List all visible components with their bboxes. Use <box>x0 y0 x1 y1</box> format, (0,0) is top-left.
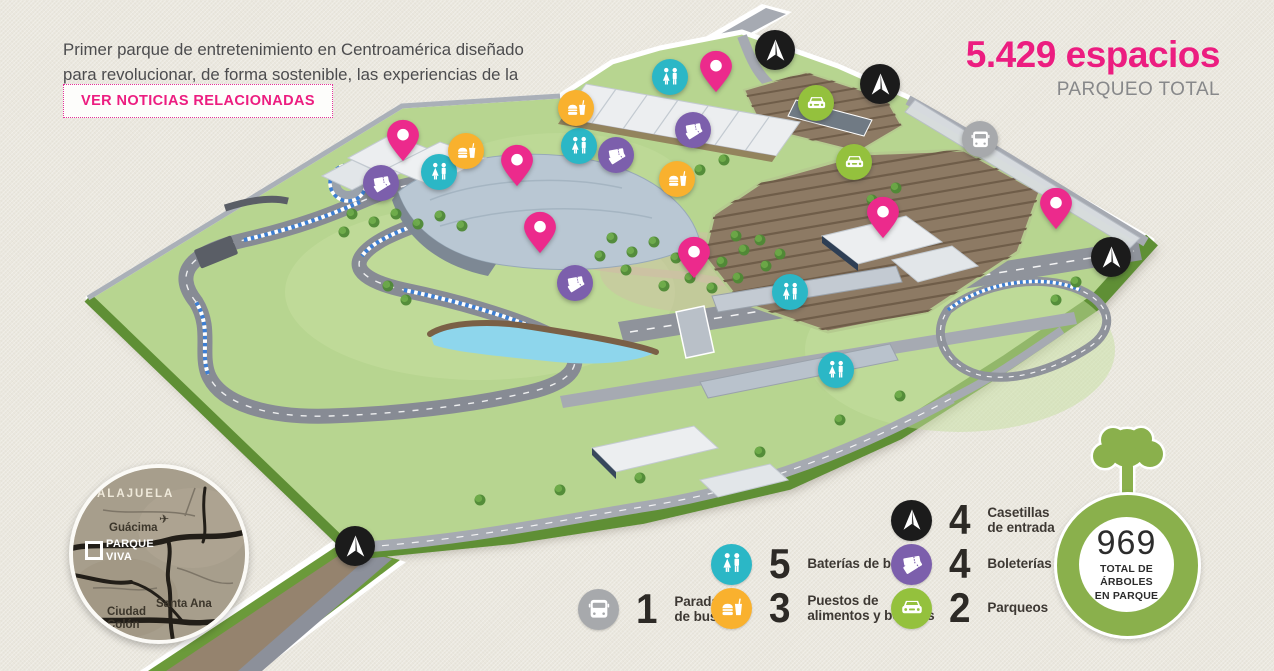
legend-count: 4 <box>949 499 970 541</box>
tree-count: 969 <box>1097 526 1157 560</box>
tree-badge-center: 969 TOTAL DE ÁRBOLES EN PARQUE <box>1079 517 1174 612</box>
map-marker-banos[interactable] <box>561 128 597 164</box>
location-inset-map: ✈ ALAJUELA Guácima PARQUE VIVA Santa Ana… <box>69 464 249 644</box>
legend-label: Boleterías <box>987 556 1051 571</box>
legend-label: Parqueos <box>987 600 1048 615</box>
parking-stat: 5.429 espacios PARQUEO TOTAL <box>966 34 1220 101</box>
map-marker-parqueo[interactable] <box>798 85 834 121</box>
tree-total-badge: 969 TOTAL DE ÁRBOLES EN PARQUE <box>1047 418 1274 671</box>
map-marker-pin[interactable] <box>677 236 711 279</box>
map-marker-pin[interactable] <box>699 50 733 93</box>
tickets-icon <box>891 544 932 585</box>
legend-count: 5 <box>769 543 790 585</box>
legend-item-parqueos: 2 Parqueos <box>891 587 1048 629</box>
legend-label: Casetillas de entrada <box>987 505 1054 535</box>
map-marker-banos[interactable] <box>652 59 688 95</box>
map-marker-pin[interactable] <box>523 211 557 254</box>
map-marker-casetilla[interactable] <box>755 30 795 70</box>
legend-count: 2 <box>949 587 970 629</box>
legend-item-casetillas-entrada: 4 Casetillas de entrada <box>891 499 1055 541</box>
map-marker-casetilla[interactable] <box>1091 237 1131 277</box>
map-marker-boleteria[interactable] <box>557 265 593 301</box>
map-marker-casetilla[interactable] <box>335 526 375 566</box>
tree-count-label: TOTAL DE ÁRBOLES EN PARQUE <box>1095 563 1158 602</box>
parque-viva-marker-square <box>85 541 103 560</box>
food-icon <box>711 588 752 629</box>
inset-label-alajuela: ALAJUELA <box>97 488 174 501</box>
bus-icon <box>578 589 619 630</box>
airport-icon: ✈ <box>159 512 169 526</box>
legend-item-parada-de-buses: 1 Parada de buses <box>578 588 732 630</box>
map-marker-pin[interactable] <box>1039 187 1073 230</box>
map-marker-parqueo[interactable] <box>836 144 872 180</box>
map-marker-alimentos[interactable] <box>558 90 594 126</box>
inset-label-parque-viva: PARQUE VIVA <box>106 538 154 563</box>
map-marker-pin[interactable] <box>500 144 534 187</box>
inset-label-ciudad-colon: Ciudad Colón <box>107 606 146 632</box>
map-marker-boleteria[interactable] <box>675 112 711 148</box>
map-marker-bus[interactable] <box>962 121 998 157</box>
car-icon <box>891 588 932 629</box>
inset-label-santa-ana: Santa Ana <box>156 598 212 611</box>
related-news-button[interactable]: VER NOTICIAS RELACIONADAS <box>63 84 333 118</box>
map-marker-banos[interactable] <box>818 352 854 388</box>
map-marker-banos[interactable] <box>772 274 808 310</box>
legend-count: 3 <box>769 587 790 629</box>
legend-count: 4 <box>949 543 970 585</box>
map-marker-pin[interactable] <box>866 196 900 239</box>
restroom-icon <box>711 544 752 585</box>
inset-label-guacima: Guácima <box>109 522 158 535</box>
entrance-arrow-icon <box>891 500 932 541</box>
map-marker-boleteria[interactable] <box>363 165 399 201</box>
map-marker-alimentos[interactable] <box>448 133 484 169</box>
parking-stat-value: 5.429 espacios <box>966 34 1220 76</box>
legend-count: 1 <box>636 588 657 630</box>
map-marker-boleteria[interactable] <box>598 137 634 173</box>
parking-stat-label: PARQUEO TOTAL <box>966 79 1220 101</box>
parque-viva-infographic: Primer parque de entretenimiento en Cent… <box>0 0 1274 671</box>
legend-item-boleterias: 4 Boleterías <box>891 543 1052 585</box>
map-marker-alimentos[interactable] <box>659 161 695 197</box>
map-marker-casetilla[interactable] <box>860 64 900 104</box>
map-marker-pin[interactable] <box>386 119 420 162</box>
